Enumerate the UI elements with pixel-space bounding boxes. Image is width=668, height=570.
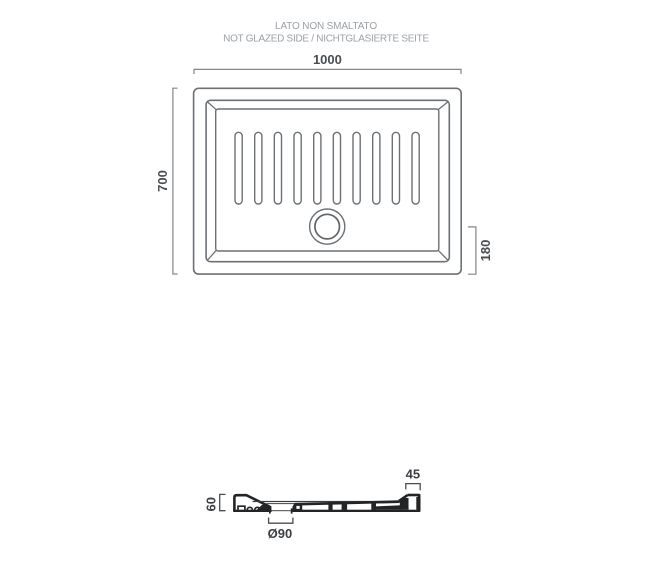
svg-text:NOT GLAZED SIDE / NICHTGLASIER: NOT GLAZED SIDE / NICHTGLASIERTE SEITE — [223, 33, 429, 44]
svg-text:45: 45 — [406, 467, 420, 482]
svg-text:Ø90: Ø90 — [268, 526, 293, 541]
svg-text:60: 60 — [204, 497, 219, 511]
svg-text:1000: 1000 — [313, 52, 342, 67]
svg-text:700: 700 — [155, 170, 170, 192]
svg-text:180: 180 — [478, 240, 493, 262]
svg-text:LATO NON SMALTATO: LATO NON SMALTATO — [275, 21, 377, 32]
